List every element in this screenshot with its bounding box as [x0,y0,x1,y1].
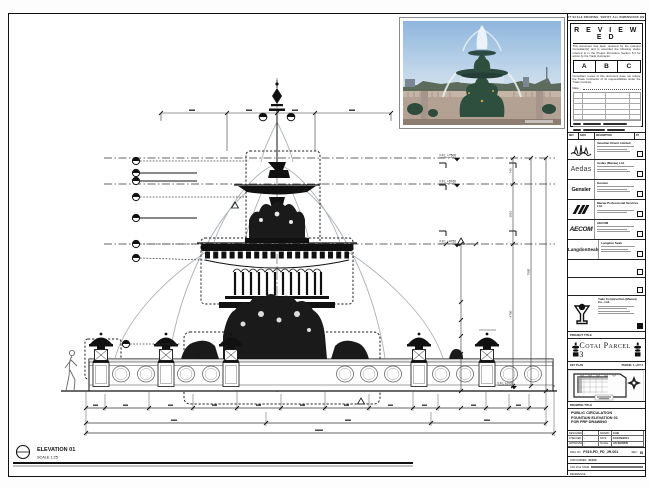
consultant-checkbox [637,231,644,238]
ornament-icon [572,342,579,358]
svg-text:740: 740 [509,168,513,173]
consultant-name: AECOM [597,222,643,225]
consultant-box-mps: Macau Professional Services Ltd. [568,200,645,220]
key-plan-box: KEY PLAN PARCEL 1, LOT 3 [568,362,645,402]
consultant-box-aedas: Aedas Aedas (Macau) Ltd. [568,160,645,180]
aecom-logo: AECOM [568,220,595,239]
reference-label: REFERENCE [570,473,585,476]
rev-label: REV : [632,451,639,454]
svg-text:7500: 7500 [527,268,531,275]
consultant-checkbox [637,251,644,258]
project-title-label: PROJECT TITLE [568,332,645,339]
rev-value: B [640,450,643,455]
svg-text:SCALE 1:25: SCALE 1:25 [37,456,58,460]
mps-logo-icon [568,200,595,219]
job-label: JOB NUMBER [570,459,586,462]
signoff-fields-table: DESIGNED - DRAWN CAD CHECKED - DATE 10/J… [568,431,645,448]
approved-label: APPROVED [568,442,583,447]
venetian-orient-logo-icon [568,140,595,159]
scale-value: AS SHOWN [612,442,644,447]
consultant-checkbox [637,151,644,158]
cad-file-value-placeholder [591,466,643,468]
dwg-number: P315-PD_FD_JR-001 [583,450,629,454]
fountain-photo-image [403,21,561,125]
stamp-revision-grid [573,92,641,121]
consultant-box-venetian: Venetian Orient Limited [568,140,645,160]
consultant-box-aecom: AECOM AECOM [568,220,645,240]
continuation-brackets [439,163,516,236]
revision-table-header: REV DATE DESCRIPTION BY [568,133,645,140]
contractor-box: Yuke Construction (Macau) Co., Ltd. [568,296,645,332]
consultant-name: Aedas (Macau) Ltd. [597,162,643,165]
blank-consultant-box [568,278,645,296]
approved-value: - [583,442,599,447]
grade-b: B [596,61,618,72]
cad-label: CAD FILE NAME [570,466,589,469]
title-block: DO NOT SCALE DRAWING. VERIFY ALL DIMENSI… [567,14,645,475]
key-plan-parcel: PARCEL 1, LOT 3 [622,364,643,367]
key-plan-label: KEY PLAN [570,364,583,367]
stamp-title: R E V I E W E D [573,26,641,44]
project-title-box: Cotai Parcel 3 [568,339,645,362]
grade-a: A [574,61,596,72]
drawing-title: PUBLIC CIRCULATION FOUNTAIN ELEVATION 01… [568,409,645,431]
key-plan-map [568,370,644,402]
drawing-title-label: DRAWING TITLE [568,402,645,409]
stamp-body-text: This document has been received by the r… [573,45,641,59]
bottom-dimensions [84,391,556,436]
grade-c: C [618,61,639,72]
consultant-checkbox [637,211,644,218]
elevation-viewport: F.F.L +7500 F.F.L +6760 F.F.L +4750 F.F.… [9,14,567,475]
aedas-logo: Aedas [568,160,595,179]
svg-text:ELEVATION 01: ELEVATION 01 [37,447,75,453]
stamp-entry-rows [573,121,641,133]
contractor-checkbox [637,323,644,330]
gensler-logo: Gensler [568,180,595,199]
ornament-icon [634,342,641,358]
reviewed-stamp: R E V I E W E D This document has been r… [568,21,645,133]
consultant-name: Langdon Seah [601,242,643,245]
consultant-name: Venetian Orient Limited [597,142,643,145]
consultant-box-langdon-seah: LangdonSeah Langdon Seah [568,240,645,260]
consultant-box-gensler: Gensler Gensler [568,180,645,200]
stamp-grade-boxes: A B C [573,60,641,73]
reference-row: REFERENCE [568,471,645,478]
consultant-name: Macau Professional Services Ltd. [597,202,643,209]
consultant-checkbox [637,269,644,276]
svg-text:F.F.L +4750: F.F.L +4750 [440,240,457,244]
stamp-date-row: Date : [573,86,641,90]
consultant-checkbox [637,171,644,178]
sheet-notes-strip: DO NOT SCALE DRAWING. VERIFY ALL DIMENSI… [568,14,645,21]
dwg-number-row: DWG NO. P315-PD_FD_JR-001 REV : B [568,448,645,457]
svg-text:F.F.L ±0.00: F.F.L ±0.00 [498,382,514,386]
consultant-name: Gensler [597,182,643,185]
svg-text:F.F.L +6760: F.F.L +6760 [440,180,457,184]
svg-text:F.F.L +7500: F.F.L +7500 [440,154,457,158]
human-scale-figure [65,350,77,391]
blank-consultant-box [568,260,645,278]
top-dimension [159,110,393,152]
job-number-row: JOB NUMBER 31103 [568,457,645,464]
svg-text:2010: 2010 [509,210,513,217]
langdon-seah-logo: LangdonSeah [568,240,599,259]
cad-file-row: CAD FILE NAME [568,464,645,471]
fountain-reference-photo [399,17,565,129]
scale-label: SCALE [599,442,612,447]
drawing-sheet: F.F.L +7500 F.F.L +6760 F.F.L +4750 F.F.… [8,13,646,477]
yuke-construction-logo-icon [568,296,596,331]
contractor-name: Yuke Construction (Macau) Co., Ltd. [598,298,643,305]
consultant-checkbox [637,191,644,198]
consultant-checkbox [637,287,644,294]
project-title: Cotai Parcel 3 [579,341,633,359]
contractor-address-lines [598,306,643,315]
right-dimension-values: 740 2010 4750 7500 [509,168,531,317]
svg-text:4750: 4750 [509,310,513,317]
date-fill-line [583,86,641,90]
job-number: 31103 [588,458,596,462]
viewport-title: ELEVATION 01 SCALE 1:25 [13,446,413,467]
stamp-disclaimer-text: Consultant review of this document does … [573,75,641,85]
dwg-label: DWG NO. [570,451,581,454]
